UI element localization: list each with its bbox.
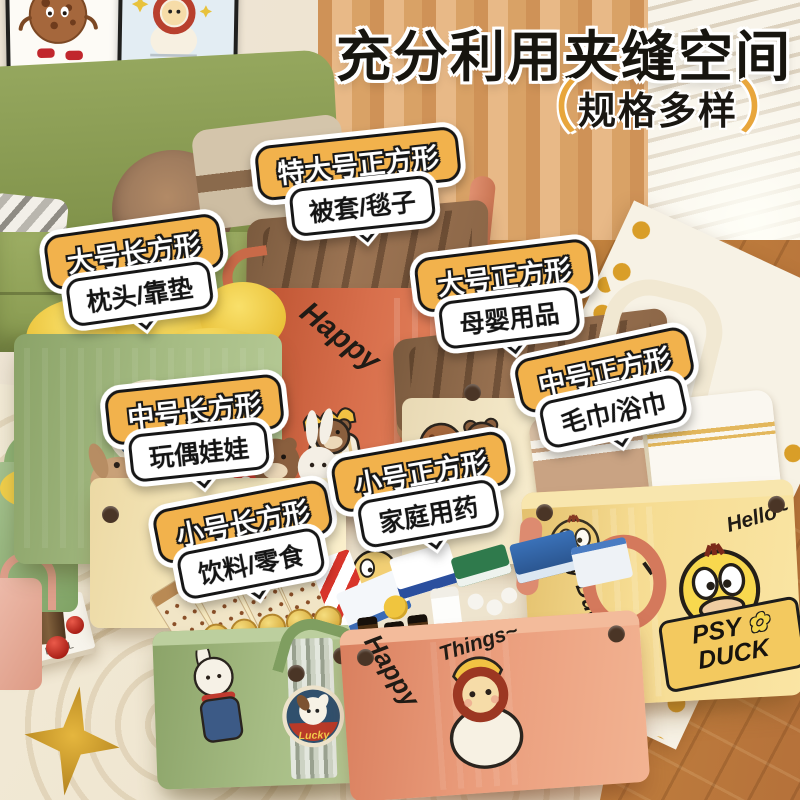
subtitle-text: 规格多样	[576, 80, 740, 135]
pink-tote	[0, 578, 42, 690]
medicine-box	[570, 537, 633, 589]
box-stud	[464, 384, 481, 401]
label-medium-rect: 中号长方形 玩偶娃娃	[104, 373, 290, 485]
lucky-badge: Lucky	[280, 683, 346, 749]
psyduck-art: Hello~ PSY ✿ DUCK	[644, 507, 800, 686]
box-stud	[102, 506, 119, 523]
cherry	[46, 636, 69, 659]
cherry	[66, 616, 84, 634]
product-scene: CEREAL Happy	[0, 0, 800, 800]
white-cap	[500, 587, 518, 605]
cat-in-hood-art	[421, 644, 545, 780]
lucky-script: Lucky	[298, 729, 330, 742]
rabbit-overalls-art	[182, 643, 262, 755]
subtitle: （ 规格多样 ）	[522, 80, 794, 135]
storage-box-small-salmon: Happy Things~	[329, 527, 658, 800]
medicine-box	[450, 544, 512, 588]
subtitle-paren-open: （	[522, 81, 576, 135]
white-cap	[486, 598, 504, 616]
subtitle-paren-close: ）	[740, 81, 794, 135]
white-cap	[467, 593, 485, 611]
